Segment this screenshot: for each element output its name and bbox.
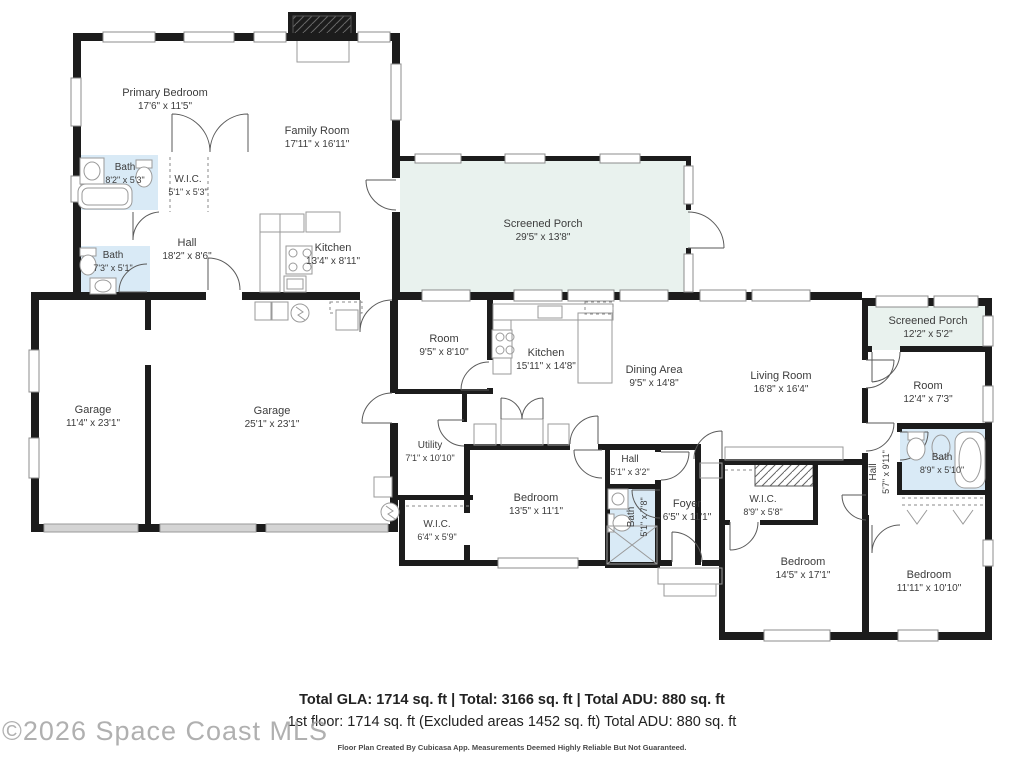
room-label-bedroom-2: Bedroom14'5" x 17'1" — [776, 556, 831, 582]
room-label-garage-1: Garage11'4" x 23'1" — [66, 404, 120, 430]
room-label-living-room: Living Room16'8" x 16'4" — [750, 370, 811, 396]
room-label-kitchen-2: Kitchen15'11" x 14'8" — [516, 347, 576, 373]
room-label-wic-1: W.I.C.5'1" x 5'3" — [168, 174, 207, 198]
garage-doors — [44, 524, 388, 532]
room-label-room-2: Room12'4" x 7'3" — [903, 380, 952, 406]
room-label-hall-3: Hall5'1" x 3'2" — [610, 454, 649, 478]
room-label-bath-1: Bath8'2" x 5'3" — [105, 162, 144, 186]
room-label-bedroom-3: Bedroom11'11" x 10'10" — [897, 569, 961, 595]
room-label-screened-porch-2: Screened Porch12'2" x 5'2" — [889, 315, 968, 341]
room-label-hall-1: Hall18'2" x 8'6" — [162, 237, 211, 263]
room-label-bath-4: Bath5'1" x 7'8" — [626, 497, 650, 536]
room-label-kitchen-1: Kitchen13'4" x 8'11" — [306, 242, 360, 268]
room-label-bath-2: Bath7'3" x 5'1" — [93, 250, 132, 274]
room-label-foyer: Foyer6'5" x 11'1" — [663, 498, 712, 524]
room-label-screened-porch-1: Screened Porch29'5" x 13'8" — [504, 218, 583, 244]
floor-plan-drawing — [0, 0, 1024, 768]
room-label-room-1: Room9'5" x 8'10" — [419, 333, 468, 359]
mls-watermark: ©2026 Space Coast MLS — [2, 716, 328, 747]
room-label-bath-3: Bath8'9" x 5'10" — [920, 452, 964, 476]
room-label-wic-2: W.I.C.6'4" x 5'9" — [417, 519, 456, 543]
room-label-hall-2: Hall5'7" x 9'11" — [868, 450, 892, 494]
floor-plan-page: Primary Bedroom17'6" x 11'5" Family Room… — [0, 0, 1024, 768]
room-label-garage-2: Garage25'1" x 23'1" — [245, 405, 300, 431]
room-label-utility: Utility7'1" x 10'10" — [405, 440, 454, 464]
room-label-family-room: Family Room17'11" x 16'11" — [285, 125, 350, 151]
room-label-bedroom-1: Bedroom13'5" x 11'1" — [509, 492, 563, 518]
room-label-dining-area: Dining Area9'5" x 14'8" — [626, 364, 683, 390]
room-label-wic-3: W.I.C.8'9" x 5'8" — [743, 494, 782, 518]
room-label-primary-bedroom: Primary Bedroom17'6" x 11'5" — [122, 87, 208, 113]
total-area-summary: Total GLA: 1714 sq. ft | Total: 3166 sq.… — [0, 692, 1024, 708]
